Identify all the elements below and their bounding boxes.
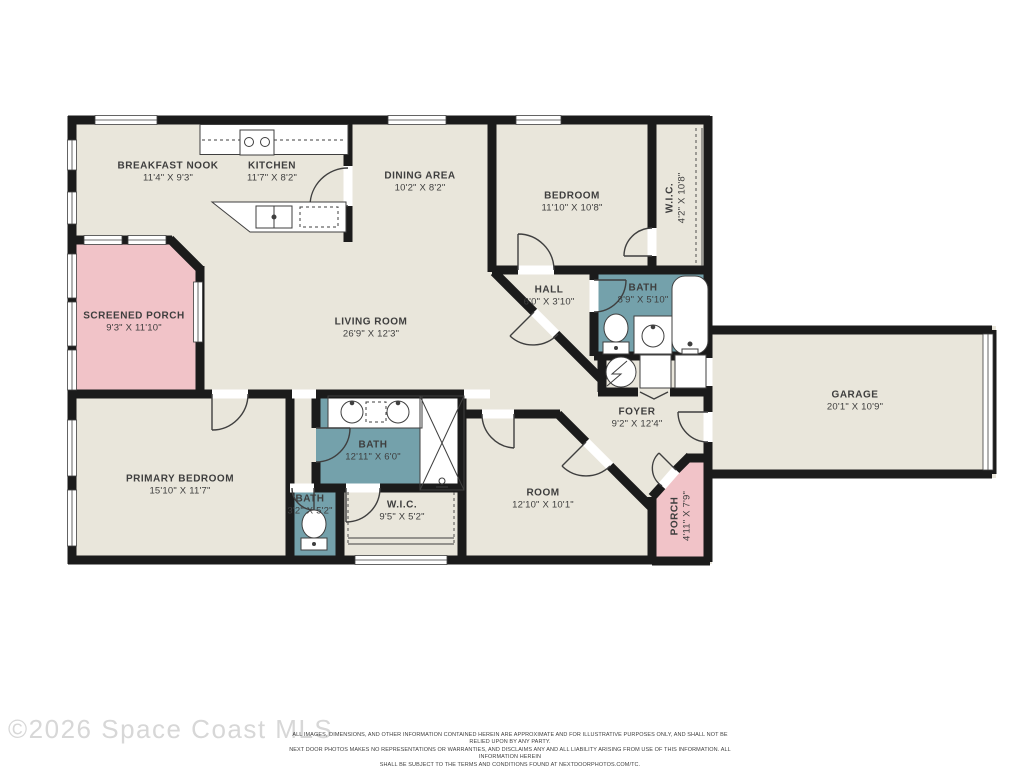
room-label-bath-small: BATH 3'2" X 5'2" (287, 492, 332, 517)
disclaimer-line-1: ALL IMAGES, DIMENSIONS, AND OTHER INFORM… (286, 732, 734, 747)
toilet (604, 314, 628, 342)
room-label-bath-primary: BATH 12'11" X 6'0" (345, 438, 401, 463)
stove (240, 130, 274, 155)
room-label-dining-area: DINING AREA 10'2" X 8'2" (384, 169, 455, 194)
room-label-bath-hall: BATH 8'9" X 5'10" (618, 281, 669, 306)
disclaimer-text: ALL IMAGES, DIMENSIONS, AND OTHER INFORM… (286, 732, 734, 768)
vanity-area (328, 396, 422, 428)
room-label-hall: HALL 6'0" X 3'10" (524, 283, 575, 308)
room-label-breakfast-nook: BREAKFAST NOOK 11'4" X 9'3" (118, 159, 219, 184)
disclaimer-line-3: SHALL BE SUBJECT TO THE TERMS AND CONDIT… (286, 762, 734, 768)
room-label-screened-porch: SCREENED PORCH 9'3" X 11'10" (83, 309, 184, 334)
washer (640, 355, 671, 388)
room-label-porch: PORCH 4'11" X 7'9" (668, 491, 693, 541)
room-label-primary-bedroom: PRIMARY BEDROOM 15'10" X 11'7" (126, 472, 234, 497)
disclaimer-line-2: NEXT DOOR PHOTOS MAKES NO REPRESENTATION… (286, 747, 734, 762)
room-label-garage: GARAGE 20'1" X 10'9" (827, 388, 883, 413)
bath-vanity (634, 316, 672, 354)
copyright-watermark: ©2026 Space Coast MLS (8, 714, 333, 745)
dryer (675, 355, 706, 388)
room-label-bedroom: BEDROOM 11'10" X 10'8" (541, 189, 602, 214)
room-label-wic-bedroom: W.I.C. 4'2" X 10'8" (663, 173, 688, 224)
room-label-kitchen: KITCHEN 11'7" X 8'2" (247, 159, 297, 184)
room-label-room: ROOM 12'10" X 10'1" (512, 486, 574, 511)
room-label-living-room: LIVING ROOM 26'9" X 12'3" (335, 315, 408, 340)
room-label-foyer: FOYER 9'2" X 12'4" (612, 405, 663, 430)
room-label-wic-primary: W.I.C. 9'5" X 5'2" (379, 498, 424, 523)
floor-plan-drawing (0, 0, 1024, 768)
floor-plan-canvas: BREAKFAST NOOK 11'4" X 9'3" KITCHEN 11'7… (0, 0, 1024, 768)
